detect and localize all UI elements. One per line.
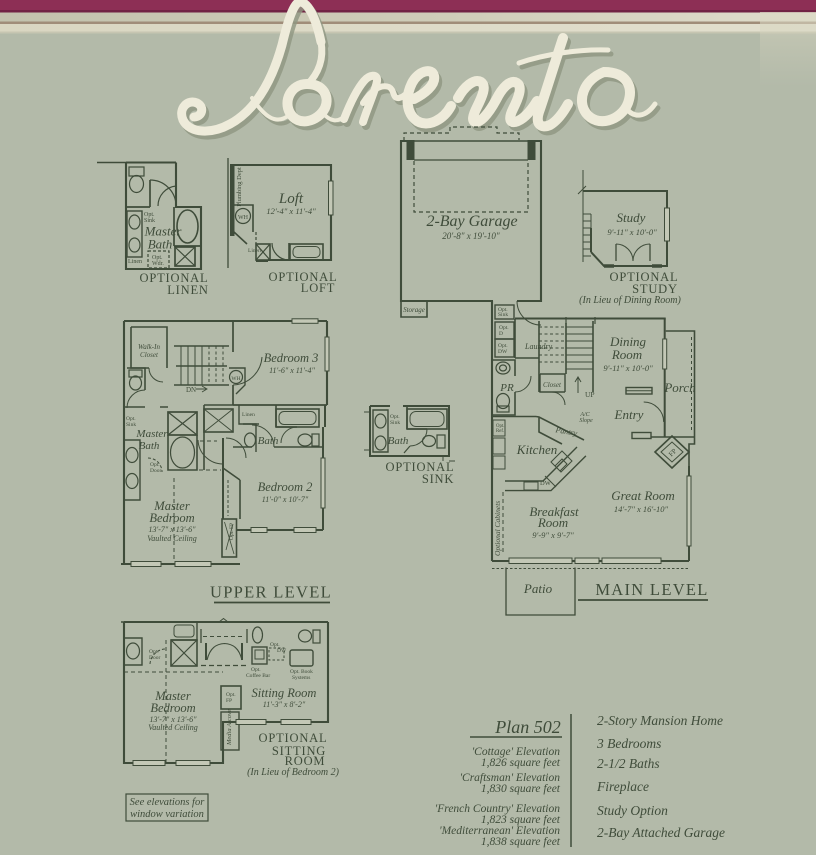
svg-text:Sink: Sink: [126, 422, 136, 428]
svg-text:14'-7" x 16'-10": 14'-7" x 16'-10": [614, 504, 669, 514]
svg-text:Room: Room: [537, 515, 568, 530]
svg-text:Wdr.: Wdr.: [152, 261, 164, 267]
svg-text:WH: WH: [231, 376, 240, 382]
svg-text:Bath: Bath: [388, 435, 409, 447]
svg-text:ROOM: ROOM: [285, 754, 326, 768]
svg-text:Closet: Closet: [140, 351, 159, 359]
svg-text:Kitchen: Kitchen: [516, 442, 557, 457]
svg-text:Study Option: Study Option: [597, 803, 668, 818]
svg-text:2-Bay Attached Garage: 2-Bay Attached Garage: [597, 825, 725, 840]
svg-text:Media Alcove: Media Alcove: [226, 709, 233, 746]
svg-text:9'-9" x 9'-7": 9'-9" x 9'-7": [532, 530, 574, 540]
svg-text:11'-6" x 11'-4": 11'-6" x 11'-4": [269, 366, 315, 375]
svg-text:Loft: Loft: [278, 191, 304, 207]
svg-text:Vaulted Ceiling: Vaulted Ceiling: [147, 534, 197, 543]
svg-text:2-Bay Garage: 2-Bay Garage: [426, 213, 517, 230]
svg-text:Optional Cabinets: Optional Cabinets: [493, 501, 502, 556]
svg-text:Bedroom: Bedroom: [149, 511, 194, 525]
svg-text:Ref.: Ref.: [496, 429, 504, 434]
svg-text:Entry: Entry: [614, 407, 644, 422]
svg-text:Walk-In: Walk-In: [138, 343, 160, 351]
svg-text:9'-11" x 10'-0": 9'-11" x 10'-0": [603, 363, 653, 373]
svg-text:Sink: Sink: [498, 312, 508, 318]
svg-text:Door: Door: [149, 655, 160, 661]
svg-text:Master: Master: [135, 428, 168, 440]
svg-text:Opt. FP: Opt. FP: [229, 523, 235, 540]
svg-text:11'-3" x 8'-2": 11'-3" x 8'-2": [263, 700, 306, 709]
svg-text:1,838 square feet: 1,838 square feet: [481, 836, 561, 848]
svg-text:Bath: Bath: [258, 435, 279, 447]
svg-text:9'-11" x 10'-0": 9'-11" x 10'-0": [607, 227, 657, 237]
svg-text:Slope: Slope: [579, 418, 593, 424]
svg-text:Bedroom: Bedroom: [150, 701, 195, 715]
svg-text:See elevations for: See elevations for: [130, 797, 206, 808]
svg-text:Bedroom 3: Bedroom 3: [264, 351, 319, 365]
svg-text:3 Bedrooms: 3 Bedrooms: [596, 736, 661, 751]
svg-text:Storage: Storage: [403, 306, 425, 314]
svg-text:(In Lieu of Bedroom 2): (In Lieu of Bedroom 2): [247, 767, 340, 778]
svg-text:Coffee Bar: Coffee Bar: [246, 672, 270, 679]
svg-text:Great Room: Great Room: [611, 488, 674, 503]
svg-text:Closet: Closet: [543, 381, 562, 389]
svg-text:12'-4" x 11'-4": 12'-4" x 11'-4": [266, 206, 316, 216]
svg-text:DW: DW: [498, 349, 508, 355]
svg-text:DN: DN: [186, 386, 196, 394]
svg-text:13'-7" x 13'-6": 13'-7" x 13'-6": [148, 525, 196, 534]
svg-text:(In Lieu of Dining Room): (In Lieu of Dining Room): [579, 295, 681, 306]
svg-text:Bedroom 2: Bedroom 2: [258, 480, 313, 494]
svg-text:OPTIONAL: OPTIONAL: [259, 731, 328, 745]
svg-text:Bath: Bath: [148, 237, 173, 252]
svg-text:11'-0" x 10'-7": 11'-0" x 10'-7": [262, 495, 309, 504]
svg-text:UPPER LEVEL: UPPER LEVEL: [210, 583, 332, 602]
svg-text:Sink: Sink: [390, 420, 400, 426]
svg-text:Patio: Patio: [523, 581, 553, 596]
svg-text:Vaulted Ceiling: Vaulted Ceiling: [148, 723, 198, 732]
svg-text:STUDY: STUDY: [632, 282, 678, 296]
svg-text:D: D: [499, 331, 503, 337]
svg-text:2-1/2 Baths: 2-1/2 Baths: [597, 756, 660, 771]
svg-text:Plan 502: Plan 502: [494, 717, 561, 737]
svg-text:UP: UP: [585, 390, 595, 399]
svg-text:WH: WH: [238, 215, 249, 221]
svg-text:DW: DW: [277, 648, 287, 654]
svg-text:MAIN LEVEL: MAIN LEVEL: [595, 580, 708, 599]
svg-text:Sitting Room: Sitting Room: [252, 686, 317, 700]
svg-text:Bath: Bath: [139, 440, 160, 452]
svg-text:window variation: window variation: [130, 809, 204, 820]
svg-text:PR: PR: [499, 382, 514, 394]
svg-text:1,830 square feet: 1,830 square feet: [481, 783, 561, 795]
svg-text:LOFT: LOFT: [301, 281, 335, 295]
svg-text:Plumbing Dept: Plumbing Dept: [236, 167, 243, 207]
svg-text:20'-8" x 19'-10": 20'-8" x 19'-10": [442, 231, 500, 241]
svg-text:Fireplace: Fireplace: [596, 779, 649, 794]
svg-text:1,826 square feet: 1,826 square feet: [481, 757, 561, 769]
svg-text:Linen: Linen: [128, 259, 142, 265]
svg-text:Linen: Linen: [242, 412, 255, 418]
svg-text:FP: FP: [226, 698, 232, 704]
svg-text:2-Story Mansion Home: 2-Story Mansion Home: [597, 713, 723, 728]
svg-text:SINK: SINK: [422, 472, 454, 486]
svg-text:LINEN: LINEN: [167, 283, 209, 297]
svg-text:Room: Room: [611, 347, 642, 362]
svg-text:Systems: Systems: [292, 675, 310, 681]
svg-text:Study: Study: [617, 210, 646, 225]
svg-text:Door: Door: [150, 468, 161, 474]
svg-text:Linen: Linen: [248, 248, 261, 254]
svg-text:DW: DW: [540, 480, 552, 487]
svg-text:Porch: Porch: [663, 380, 695, 395]
